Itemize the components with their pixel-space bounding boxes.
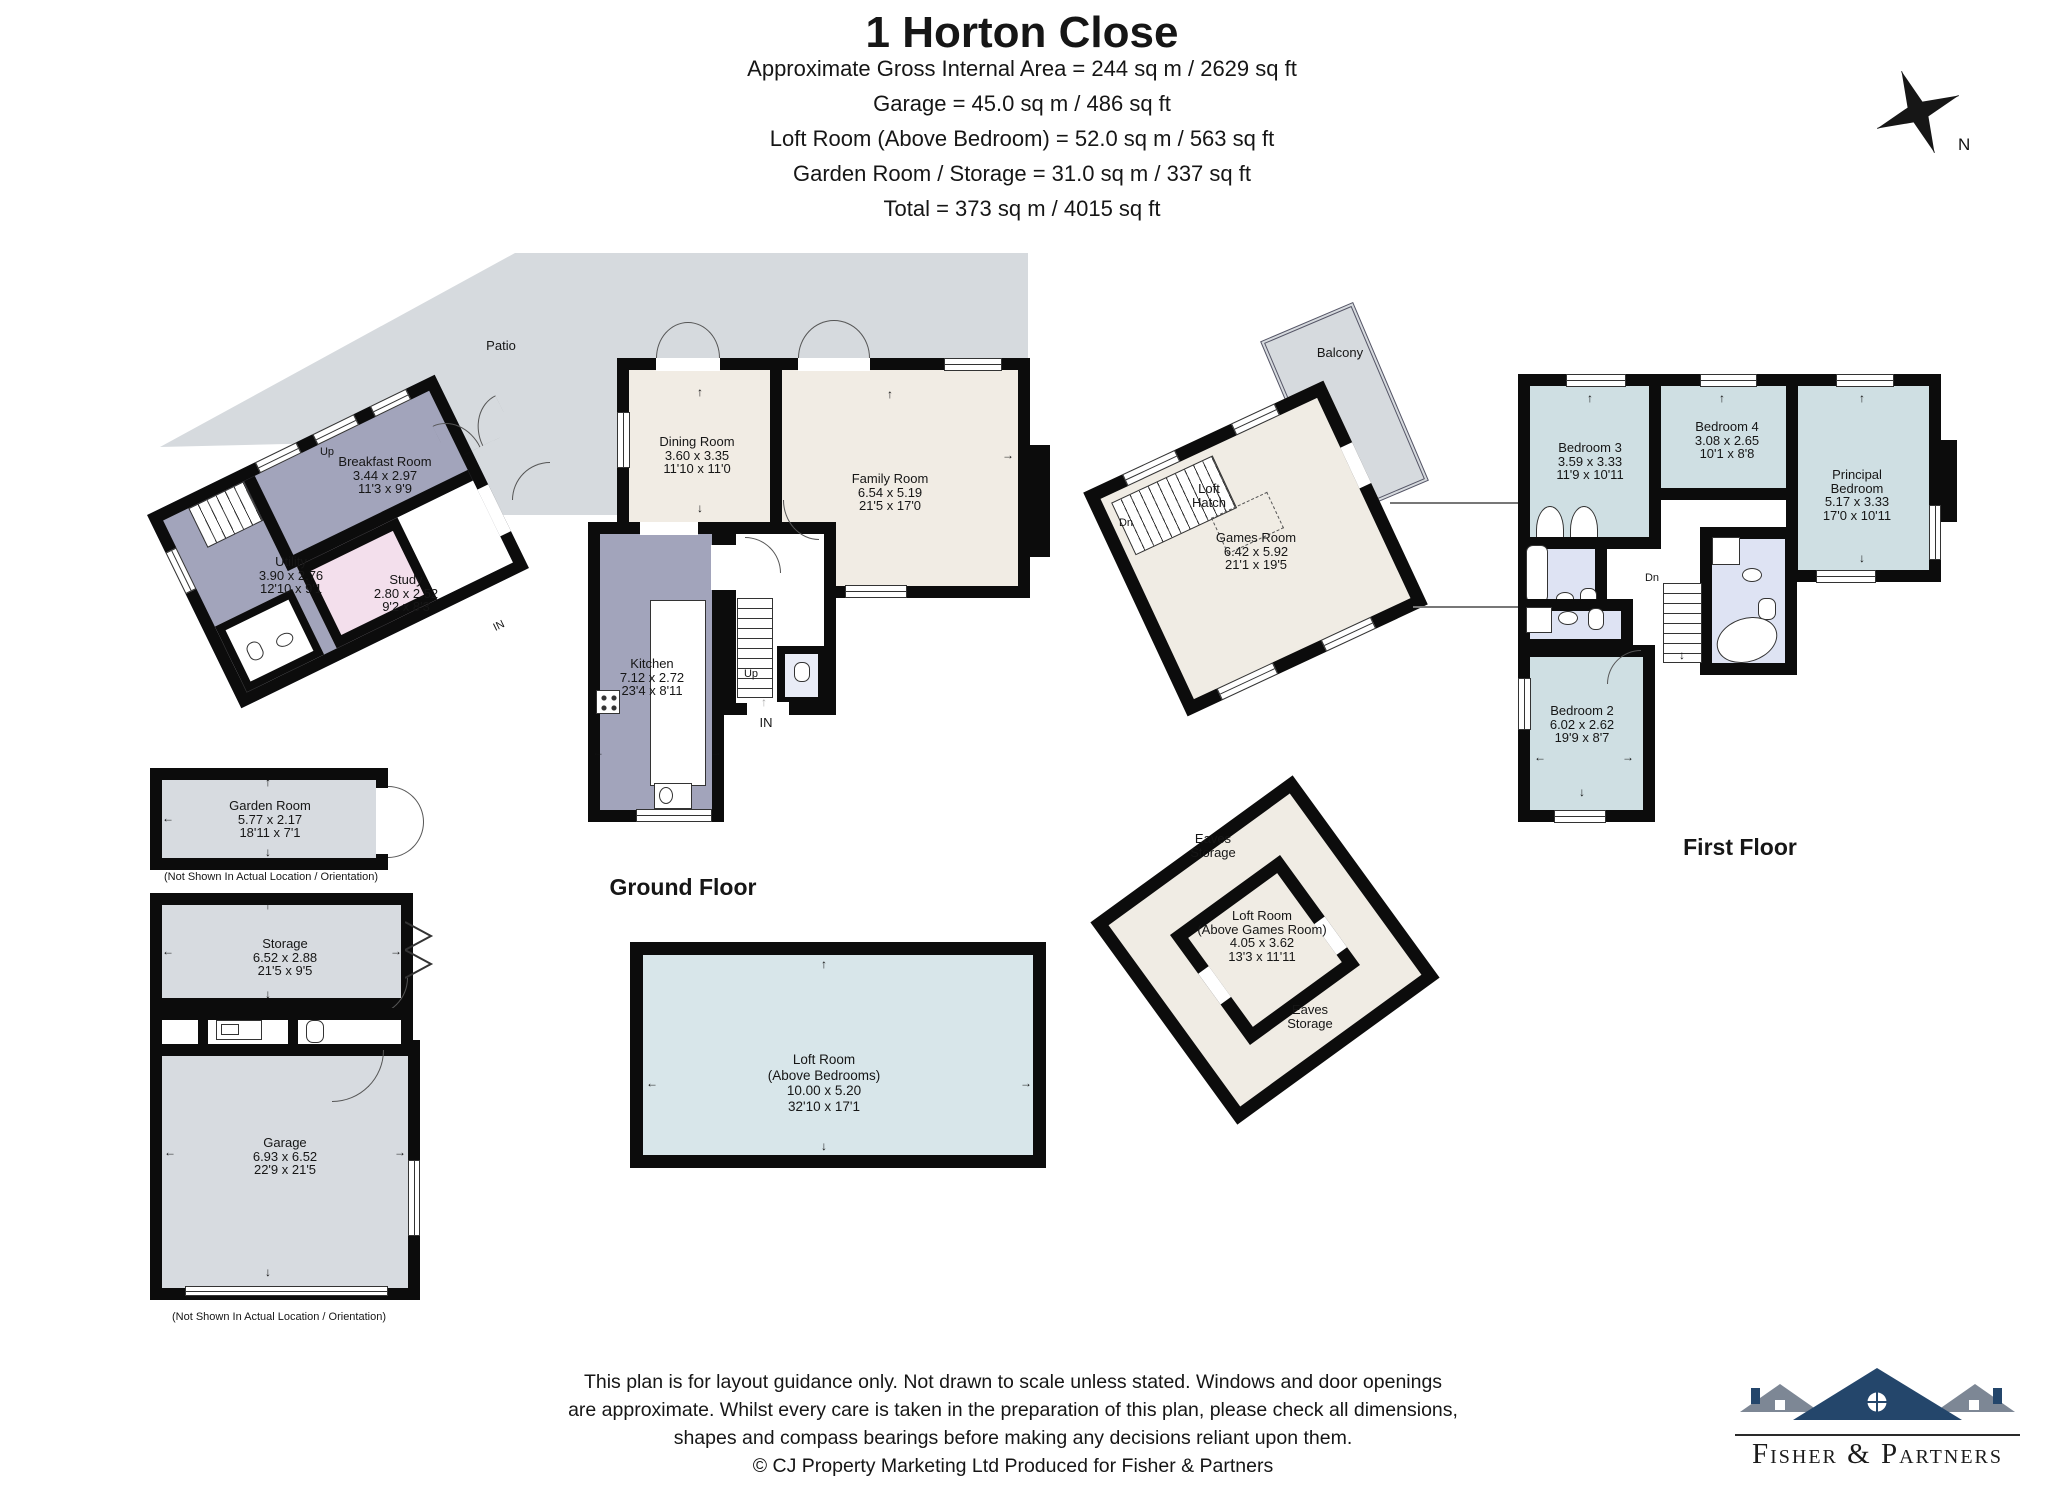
- room-name: Utility: [259, 555, 323, 569]
- dn-label-first: Dn: [1645, 572, 1659, 584]
- label-line: Eaves: [1190, 832, 1236, 846]
- bedroom4-label: Bedroom 4 3.08 x 2.65 10'1 x 8'8: [1695, 420, 1759, 461]
- dimension-arrow: ↓: [265, 846, 271, 858]
- area-line-garage: Garage = 45.0 sq m / 486 sq ft: [873, 92, 1171, 115]
- loft-bedrooms-label: Loft Room (Above Bedrooms) 10.00 x 5.20 …: [768, 1052, 881, 1114]
- room-name: Garden Room: [229, 799, 311, 813]
- dimension-arrow: ←: [592, 746, 604, 758]
- bedroom3-label: Bedroom 3 3.59 x 3.33 11'9 x 10'11: [1556, 441, 1623, 482]
- window: [1929, 505, 1941, 560]
- room-size-imperial: 12'10 x 9'1: [259, 582, 323, 596]
- room-size-imperial: 21'1 x 19'5: [1216, 558, 1296, 572]
- room-name: Study: [374, 573, 438, 587]
- window: [408, 1160, 420, 1236]
- dimension-arrow: ←: [646, 1077, 658, 1089]
- room-size-metric: 3.90 x 2.76: [259, 569, 323, 583]
- copyright-line: © CJ Property Marketing Ltd Produced for…: [753, 1452, 1274, 1481]
- utility-label: Utility 3.90 x 2.76 12'10 x 9'1: [259, 555, 323, 596]
- room-size-imperial: 10'1 x 8'8: [1695, 447, 1759, 461]
- window: [1566, 374, 1626, 387]
- door-arc: [388, 822, 424, 858]
- dimension-arrow: ↑: [1587, 392, 1593, 404]
- room-size-imperial: 11'3 x 9'9: [338, 482, 431, 496]
- sink-bowl: [659, 787, 673, 804]
- in-label-wing: IN: [491, 618, 506, 634]
- dimension-arrow: ←: [164, 1146, 176, 1158]
- dimension-arrow: ↓: [265, 1266, 271, 1278]
- window: [1836, 374, 1894, 387]
- garden-room-label: Garden Room 5.77 x 2.17 18'11 x 7'1: [229, 799, 311, 840]
- in-label-main: IN: [760, 716, 773, 730]
- area-line-loft: Loft Room (Above Bedroom) = 52.0 sq m / …: [770, 127, 1274, 150]
- page-title: 1 Horton Close: [866, 10, 1179, 56]
- window: [1816, 570, 1876, 583]
- chimney-wall: [1030, 445, 1050, 557]
- dimension-arrow: →: [710, 746, 722, 758]
- toilet-icon: [306, 1020, 324, 1043]
- dimension-arrow: ↑: [697, 386, 703, 398]
- room-name: Loft Room: [1197, 909, 1326, 923]
- room-name: Loft Room: [768, 1052, 881, 1068]
- room-size-metric: 6.02 x 2.62: [1550, 718, 1614, 732]
- not-shown-note-garage: (Not Shown In Actual Location / Orientat…: [172, 1311, 386, 1323]
- room-size-imperial: 17'0 x 10'11: [1823, 509, 1891, 523]
- wc-room: [777, 646, 826, 705]
- sink-icon: [274, 630, 296, 650]
- up-label-wing: Up: [320, 446, 334, 458]
- eaves-storage-label-top: Eaves Storage: [1190, 832, 1236, 859]
- door-opening: [656, 358, 720, 371]
- door-arc: [388, 786, 424, 822]
- kitchen-label: Kitchen 7.12 x 2.72 23'4 x 8'11: [620, 657, 684, 698]
- sink-icon: [1558, 611, 1578, 625]
- patio-label: Patio: [486, 339, 516, 353]
- area-line-total: Total = 373 sq m / 4015 sq ft: [884, 197, 1161, 220]
- room-name: Bedroom 2: [1550, 704, 1614, 718]
- not-shown-note-garden: (Not Shown In Actual Location / Orientat…: [164, 871, 378, 883]
- window: [617, 412, 630, 468]
- games-room-label: Games Room 6.42 x 5.92 21'1 x 19'5: [1216, 531, 1296, 572]
- chimney-wall: [1941, 440, 1957, 522]
- room-name: Bedroom 4: [1695, 420, 1759, 434]
- window: [1700, 374, 1757, 387]
- room-size-metric: 7.12 x 2.72: [620, 671, 684, 685]
- dimension-arrow: →: [1020, 1077, 1032, 1089]
- shower-icon: [1526, 607, 1552, 633]
- dimension-arrow: ←: [1534, 751, 1546, 763]
- up-label-hall: Up: [744, 668, 758, 680]
- room-name: Family Room: [852, 472, 929, 486]
- wall: [198, 1012, 208, 1050]
- kitchen-sink-icon: [654, 783, 692, 809]
- label-line: Hatch: [1192, 496, 1226, 510]
- room-size-metric: 6.52 x 2.88: [253, 951, 317, 965]
- bathtub-icon: [1526, 545, 1548, 603]
- room-size-metric: 6.42 x 5.92: [1216, 545, 1296, 559]
- shower-icon: [1712, 537, 1740, 565]
- room-size-metric: 3.59 x 3.33: [1556, 455, 1623, 469]
- front-door-opening: [747, 702, 789, 715]
- disclaimer-line-1: This plan is for layout guidance only. N…: [584, 1368, 1442, 1397]
- label-line: Storage: [1287, 1017, 1333, 1031]
- sink-bowl: [221, 1024, 239, 1035]
- window: [845, 585, 907, 598]
- room-name: Dining Room: [659, 435, 734, 449]
- ground-floor-title: Ground Floor: [610, 875, 757, 899]
- sink-icon: [1742, 568, 1762, 582]
- family-room-label: Family Room 6.54 x 5.19 21'5 x 17'0: [852, 472, 929, 513]
- window: [1217, 662, 1279, 700]
- room-size-metric: 3.08 x 2.65: [1695, 434, 1759, 448]
- room-size-metric: 5.77 x 2.17: [229, 813, 311, 827]
- dimension-arrow: →: [394, 1146, 406, 1158]
- room-size-imperial: 21'5 x 9'5: [253, 964, 317, 978]
- room-size-metric: 4.05 x 3.62: [1197, 936, 1326, 950]
- compass-icon: N: [1872, 66, 1972, 166]
- label-line: Loft: [1192, 482, 1226, 496]
- floorplan-page: 1 Horton Close Approximate Gross Interna…: [0, 0, 2048, 1495]
- toilet-icon: [1588, 608, 1604, 630]
- dimension-arrow: ↓: [1579, 786, 1585, 798]
- window: [1231, 403, 1280, 435]
- dimension-arrow: ↓: [697, 502, 703, 514]
- room-size-imperial: 23'4 x 8'11: [620, 684, 684, 698]
- window: [944, 358, 1002, 371]
- bedroom2-label: Bedroom 2 6.02 x 2.62 19'9 x 8'7: [1550, 704, 1614, 745]
- first-floor-title: First Floor: [1683, 835, 1797, 859]
- room-subname: (Above Bedrooms): [768, 1068, 881, 1084]
- room-size-imperial: 11'10 x 11'0: [659, 462, 734, 476]
- loft-hatch-label: Loft Hatch: [1192, 482, 1226, 509]
- room-size-metric: 10.00 x 5.20: [768, 1083, 881, 1099]
- room-size-imperial: 21'5 x 17'0: [852, 499, 929, 513]
- dimension-arrow: ↑: [821, 958, 827, 970]
- area-line-gross: Approximate Gross Internal Area = 244 sq…: [747, 57, 1297, 80]
- connector-line: [1390, 502, 1518, 504]
- room-size-metric: 6.93 x 6.52: [253, 1150, 317, 1164]
- disclaimer-line-2: are approximate. Whilst every care is ta…: [568, 1396, 1458, 1425]
- toilet-icon: [244, 639, 266, 663]
- dimension-arrow: →: [1002, 449, 1014, 461]
- dimension-arrow: ↓: [821, 1140, 827, 1152]
- window: [636, 809, 712, 822]
- window: [1321, 617, 1376, 652]
- room-size-imperial: 32'10 x 17'1: [768, 1099, 881, 1115]
- dimension-arrow: →: [390, 945, 402, 957]
- main-stairs: [737, 598, 773, 698]
- stove-icon: [596, 690, 620, 714]
- label-line: Storage: [1190, 846, 1236, 860]
- room-size-imperial: 13'3 x 11'11: [1197, 950, 1326, 964]
- dimension-arrow: ↑: [887, 388, 893, 400]
- room-name: Garage: [253, 1136, 317, 1150]
- fisher-partners-logo-text: Fisher & Partners: [1735, 1438, 2020, 1471]
- study-label: Study 2.80 x 2.52 9'2 x 8'3: [374, 573, 438, 614]
- room-size-metric: 2.80 x 2.52: [374, 587, 438, 601]
- room-name: Bedroom: [1823, 482, 1891, 496]
- breakfast-room-label: Breakfast Room 3.44 x 2.97 11'3 x 9'9: [338, 455, 431, 496]
- door-opening: [798, 358, 870, 371]
- room-size-imperial: 11'9 x 10'11: [1556, 468, 1623, 482]
- room-name: Patio: [486, 339, 516, 353]
- window: [165, 548, 196, 595]
- window: [1518, 678, 1531, 730]
- garage-door: [185, 1286, 388, 1296]
- balcony-label: Balcony: [1317, 346, 1363, 360]
- garage-label: Garage 6.93 x 6.52 22'9 x 21'5: [253, 1136, 317, 1177]
- garage-wc-strip: [150, 1008, 413, 1056]
- room-size-imperial: 19'9 x 8'7: [1550, 731, 1614, 745]
- dimension-arrow: ↑: [1719, 392, 1725, 404]
- entry-arrow-icon: ↑: [761, 696, 767, 708]
- storage-label: Storage 6.52 x 2.88 21'5 x 9'5: [253, 937, 317, 978]
- room-name: Storage: [253, 937, 317, 951]
- room-size-imperial: 18'11 x 7'1: [229, 826, 311, 840]
- dimension-arrow: →: [1622, 751, 1634, 763]
- room-size-metric: 3.44 x 2.97: [338, 469, 431, 483]
- room-size-metric: 6.54 x 5.19: [852, 486, 929, 500]
- room-name: Kitchen: [620, 657, 684, 671]
- window: [1554, 810, 1606, 823]
- room-size-imperial: 9'2 x 8'3: [374, 600, 438, 614]
- window: [255, 442, 302, 473]
- dn-label-games: Dn: [1119, 517, 1133, 529]
- wing-bathroom: [215, 589, 324, 692]
- dimension-arrow: ↓: [265, 988, 271, 1000]
- room-size-imperial: 22'9 x 21'5: [253, 1163, 317, 1177]
- toilet-icon: [794, 662, 810, 682]
- dimension-arrow: ←: [162, 945, 174, 957]
- loft-games-label: Loft Room (Above Games Room) 4.05 x 3.62…: [1197, 909, 1326, 963]
- principal-bedroom-label: Principal Bedroom 5.17 x 3.33 17'0 x 10'…: [1823, 468, 1891, 522]
- dimension-arrow: ↓: [1859, 552, 1865, 564]
- area-line-garden: Garden Room / Storage = 31.0 sq m / 337 …: [793, 162, 1251, 185]
- wall: [288, 1012, 298, 1050]
- disclaimer-line-3: shapes and compass bearings before makin…: [674, 1424, 1353, 1453]
- room-name: Games Room: [1216, 531, 1296, 545]
- fisher-partners-logo-icon: [1735, 1360, 2020, 1434]
- room-name: Breakfast Room: [338, 455, 431, 469]
- utility-sink-icon: [216, 1020, 262, 1040]
- stairs-arrow: ↓: [1679, 649, 1685, 661]
- room-size-metric: 3.60 x 3.35: [659, 449, 734, 463]
- dining-room-label: Dining Room 3.60 x 3.35 11'10 x 11'0: [659, 435, 734, 476]
- door-opening: [376, 788, 388, 854]
- room-name: Bedroom 3: [1556, 441, 1623, 455]
- logo-divider: [1735, 1434, 2020, 1436]
- connector-line: [1413, 606, 1518, 608]
- compass-north-label: N: [1958, 135, 1970, 154]
- label-line: Eaves: [1287, 1003, 1333, 1017]
- eaves-storage-label-bottom: Eaves Storage: [1287, 1003, 1333, 1030]
- door-opening: [640, 522, 698, 535]
- room-subname: (Above Games Room): [1197, 923, 1326, 937]
- door-opening: [711, 545, 737, 590]
- room-name: Principal: [1823, 468, 1891, 482]
- room-size-metric: 5.17 x 3.33: [1823, 495, 1891, 509]
- dimension-arrow: ↑: [265, 899, 271, 911]
- dimension-arrow: ←: [162, 812, 174, 824]
- dimension-arrow: ↑: [265, 776, 271, 788]
- storage-door-zigzag: [405, 920, 435, 982]
- dimension-arrow: ↑: [1859, 392, 1865, 404]
- room-name: Balcony: [1317, 346, 1363, 360]
